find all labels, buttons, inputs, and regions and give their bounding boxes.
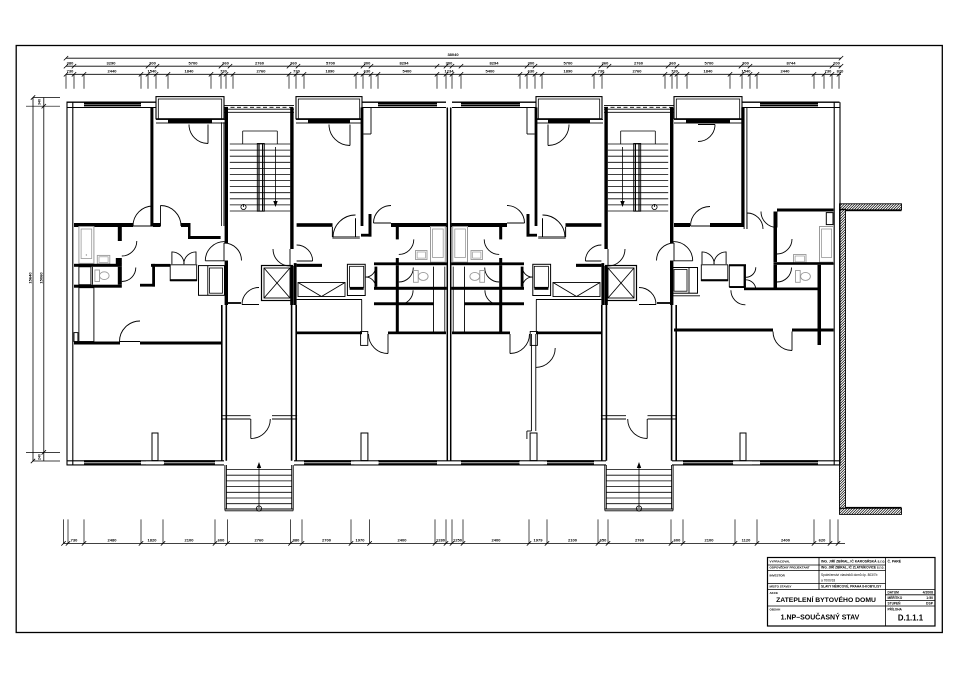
svg-text:620: 620	[819, 537, 826, 542]
svg-text:2760: 2760	[635, 537, 645, 542]
svg-text:DATUM: DATUM	[888, 590, 900, 594]
svg-text:360: 360	[290, 61, 297, 66]
svg-text:2400: 2400	[398, 537, 408, 542]
svg-text:2100: 2100	[185, 537, 195, 542]
svg-text:DSP: DSP	[926, 602, 934, 606]
svg-text:5400: 5400	[403, 69, 413, 74]
svg-text:600: 600	[674, 537, 681, 542]
svg-text:OBSAH: OBSAH	[770, 608, 781, 612]
svg-text:300: 300	[742, 61, 749, 66]
svg-text:300: 300	[446, 61, 453, 66]
svg-text:360: 360	[669, 61, 676, 66]
svg-text:1890: 1890	[564, 69, 574, 74]
svg-text:8294: 8294	[400, 61, 410, 66]
svg-text:ING. JIŘÍ ZBÍRAL, IČ ZLATNÍKOV: ING. JIŘÍ ZBÍRAL, IČ ZLATNÍKOVICE s.r.o.	[821, 565, 884, 570]
svg-text:730: 730	[220, 69, 227, 74]
svg-text:1120: 1120	[742, 537, 751, 542]
svg-text:4/2008: 4/2008	[923, 590, 933, 594]
svg-text:300: 300	[528, 61, 535, 66]
svg-text:2440: 2440	[781, 69, 791, 74]
svg-text:ING. JIŘÍ ZBÍRAL, IČ KAROSŘSKÁ: ING. JIŘÍ ZBÍRAL, IČ KAROSŘSKÁ s.r.o.	[821, 559, 885, 564]
svg-text:2760: 2760	[255, 61, 265, 66]
svg-text:INVESTOR: INVESTOR	[770, 574, 786, 578]
svg-text:360: 360	[602, 61, 609, 66]
svg-text:MĚŘÍTKO: MĚŘÍTKO	[888, 595, 903, 600]
svg-text:1540: 1540	[148, 69, 158, 74]
svg-text:240: 240	[38, 454, 42, 460]
svg-text:5700: 5700	[564, 61, 574, 66]
svg-text:340: 340	[38, 99, 42, 105]
svg-text:ZATEPLENÍ BYTOVÉHO DOMU: ZATEPLENÍ BYTOVÉHO DOMU	[776, 595, 876, 604]
svg-text:300: 300	[149, 61, 156, 66]
svg-text:820: 820	[837, 69, 844, 74]
svg-text:5700: 5700	[189, 61, 199, 66]
svg-text:5700: 5700	[326, 61, 336, 66]
svg-text:730: 730	[825, 69, 832, 74]
svg-text:730: 730	[67, 69, 74, 74]
svg-text:5400: 5400	[486, 69, 496, 74]
svg-text:2760: 2760	[633, 69, 643, 74]
svg-text:15640: 15640	[28, 272, 33, 284]
svg-text:1.NP–SOUČASNÝ STAV: 1.NP–SOUČASNÝ STAV	[781, 613, 860, 622]
svg-text:D.1.1.1: D.1.1.1	[898, 614, 924, 623]
svg-text:200: 200	[833, 61, 840, 66]
svg-text:730: 730	[671, 69, 678, 74]
svg-text:2700: 2700	[322, 537, 332, 542]
svg-text:1280: 1280	[436, 537, 446, 542]
svg-text:8294: 8294	[490, 61, 500, 66]
svg-text:STUPEŇ: STUPEŇ	[888, 601, 902, 606]
svg-text:2440: 2440	[108, 69, 118, 74]
svg-text:650: 650	[600, 537, 607, 542]
svg-text:1820: 1820	[148, 537, 158, 542]
svg-text:300: 300	[364, 61, 371, 66]
svg-text:1540: 1540	[742, 69, 752, 74]
svg-text:2480: 2480	[108, 537, 118, 542]
svg-text:1234: 1234	[445, 69, 455, 74]
svg-text:VYPRACOVAL: VYPRACOVAL	[770, 559, 791, 563]
svg-text:1970: 1970	[356, 537, 366, 542]
svg-text:1840: 1840	[185, 69, 195, 74]
svg-text:15060: 15060	[38, 272, 43, 284]
svg-text:5700: 5700	[705, 61, 715, 66]
svg-text:8744: 8744	[787, 61, 797, 66]
svg-text:2100: 2100	[705, 537, 715, 542]
svg-text:2400: 2400	[492, 537, 502, 542]
svg-text:730: 730	[293, 69, 300, 74]
svg-text:730: 730	[598, 69, 605, 74]
svg-text:360: 360	[222, 61, 229, 66]
svg-text:630: 630	[528, 69, 535, 74]
svg-text:1890: 1890	[326, 69, 336, 74]
svg-text:1:50: 1:50	[926, 596, 933, 600]
svg-text:AKCE: AKCE	[770, 591, 779, 595]
svg-text:880: 880	[293, 537, 300, 542]
svg-text:SLAVY NĚMCOVÉ, PRAHA 8-KOBYLIS: SLAVY NĚMCOVÉ, PRAHA 8-KOBYLISY	[821, 583, 882, 588]
svg-text:2760: 2760	[257, 69, 267, 74]
svg-text:1250: 1250	[453, 537, 463, 542]
svg-text:38040: 38040	[447, 52, 459, 57]
svg-text:3290: 3290	[107, 61, 117, 66]
svg-text:Společenství vlastníků domů čp: Společenství vlastníků domů čp. 803/7b	[821, 573, 878, 577]
svg-text:730: 730	[71, 537, 78, 542]
svg-text:1840: 1840	[704, 69, 714, 74]
svg-text:MÍSTO STAVBY: MÍSTO STAVBY	[770, 583, 792, 588]
svg-text:380: 380	[67, 61, 74, 66]
svg-text:PŘÍLOHA: PŘÍLOHA	[888, 607, 903, 612]
svg-text:1979: 1979	[534, 537, 544, 542]
svg-text:2400: 2400	[781, 537, 791, 542]
svg-text:2760: 2760	[634, 61, 644, 66]
svg-text:a 7000/18: a 7000/18	[821, 579, 835, 583]
svg-text:2100: 2100	[568, 537, 578, 542]
svg-text:ODPOVĚDNÝ PROJEKTANT: ODPOVĚDNÝ PROJEKTANT	[770, 564, 810, 569]
svg-text:630: 630	[364, 69, 371, 74]
svg-text:Č. PARÉ: Č. PARÉ	[888, 559, 902, 564]
svg-text:600: 600	[218, 537, 225, 542]
svg-text:2760: 2760	[255, 537, 265, 542]
